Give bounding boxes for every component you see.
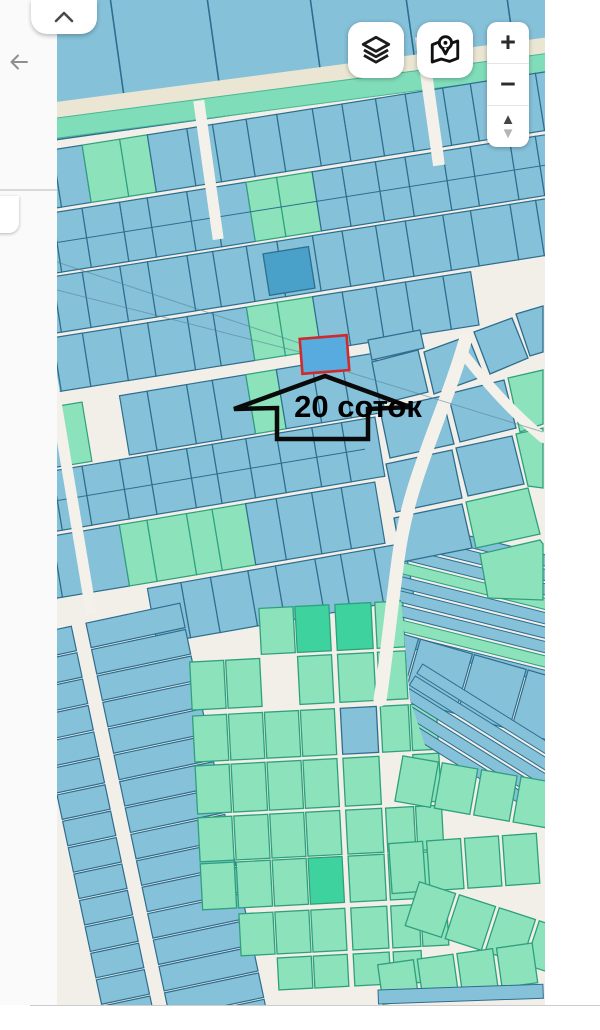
- zoom-out-button[interactable]: −: [487, 63, 529, 105]
- minus-icon: −: [500, 71, 516, 98]
- pan-up-icon: ▲: [501, 113, 516, 127]
- pan-down-icon: ▼: [501, 127, 516, 141]
- side-panel: [0, 0, 57, 1005]
- zoom-in-button[interactable]: +: [487, 22, 529, 63]
- map-location-icon: [427, 32, 463, 68]
- panel-divider: [0, 189, 57, 191]
- layers-button[interactable]: [348, 22, 404, 78]
- collapse-panel-tab[interactable]: [31, 0, 97, 34]
- bottom-divider: [30, 1005, 600, 1006]
- map-canvas[interactable]: 20 соток: [0, 0, 600, 1030]
- pan-buttons[interactable]: ▲ ▼: [487, 105, 529, 147]
- arrow-left-icon: [6, 49, 32, 75]
- zoom-control: + − ▲ ▼: [487, 22, 529, 147]
- chevron-up-icon: [51, 8, 77, 26]
- layers-icon: [359, 33, 393, 67]
- plus-icon: +: [500, 29, 516, 56]
- map-app-screen: { "annotation": { "label": "20 соток" },…: [0, 0, 600, 1030]
- map-legend-button[interactable]: [417, 22, 473, 78]
- bottom-margin: [0, 1005, 600, 1030]
- back-button[interactable]: [6, 49, 32, 75]
- area-annotation-label: 20 соток: [294, 389, 422, 424]
- panel-card-edge[interactable]: [0, 196, 19, 233]
- selected-parcel[interactable]: [300, 335, 350, 374]
- right-margin: [545, 0, 600, 1005]
